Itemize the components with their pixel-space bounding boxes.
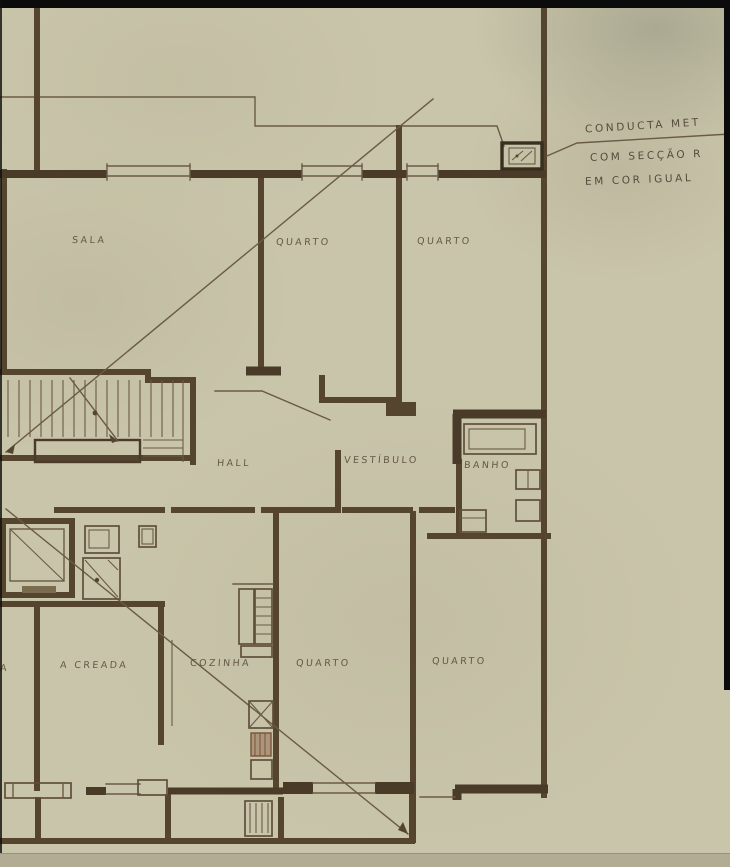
- window-openings: [5, 164, 455, 798]
- light-shaft: [10, 529, 64, 593]
- room-label-quarto-2: QUARTO: [417, 236, 472, 247]
- balcony-tank: [245, 801, 272, 836]
- duct-box: [502, 143, 542, 169]
- blueprint-sheet: SALAQUARTOQUARTOHALLVESTÍBULOBANHOA CREA…: [0, 0, 730, 867]
- wall-pier: [386, 402, 416, 416]
- room-label-quarto-1: QUARTO: [276, 237, 331, 248]
- room-label-vestibulo: VESTÍBULO: [344, 455, 419, 466]
- sink-icon: [251, 733, 271, 756]
- kitchen-fixtures: [233, 584, 273, 779]
- scan-edge-right: [724, 0, 730, 690]
- scan-edge-top: [0, 0, 730, 8]
- staircase: [8, 378, 183, 462]
- party-wall-lines: [0, 97, 504, 146]
- scan-edge-bottom: [0, 853, 730, 867]
- room-label-quarto-4: QUARTO: [432, 656, 487, 667]
- room-label-sala: SALA: [72, 235, 107, 246]
- maid-bath-fixtures: [83, 526, 156, 599]
- bidet-icon: [516, 500, 540, 521]
- room-label-banho: BANHO: [464, 460, 512, 471]
- room-label-hall: HALL: [217, 458, 252, 469]
- room-label-creada: A CREADA: [60, 660, 129, 671]
- washbasin-icon: [460, 510, 486, 532]
- room-label-cozinha: COZINHA: [190, 658, 252, 669]
- scan-edge-left: [0, 0, 2, 867]
- bathroom-fixtures: [460, 424, 540, 532]
- room-label-quarto-3: QUARTO: [296, 658, 351, 669]
- window-sill: [138, 780, 167, 795]
